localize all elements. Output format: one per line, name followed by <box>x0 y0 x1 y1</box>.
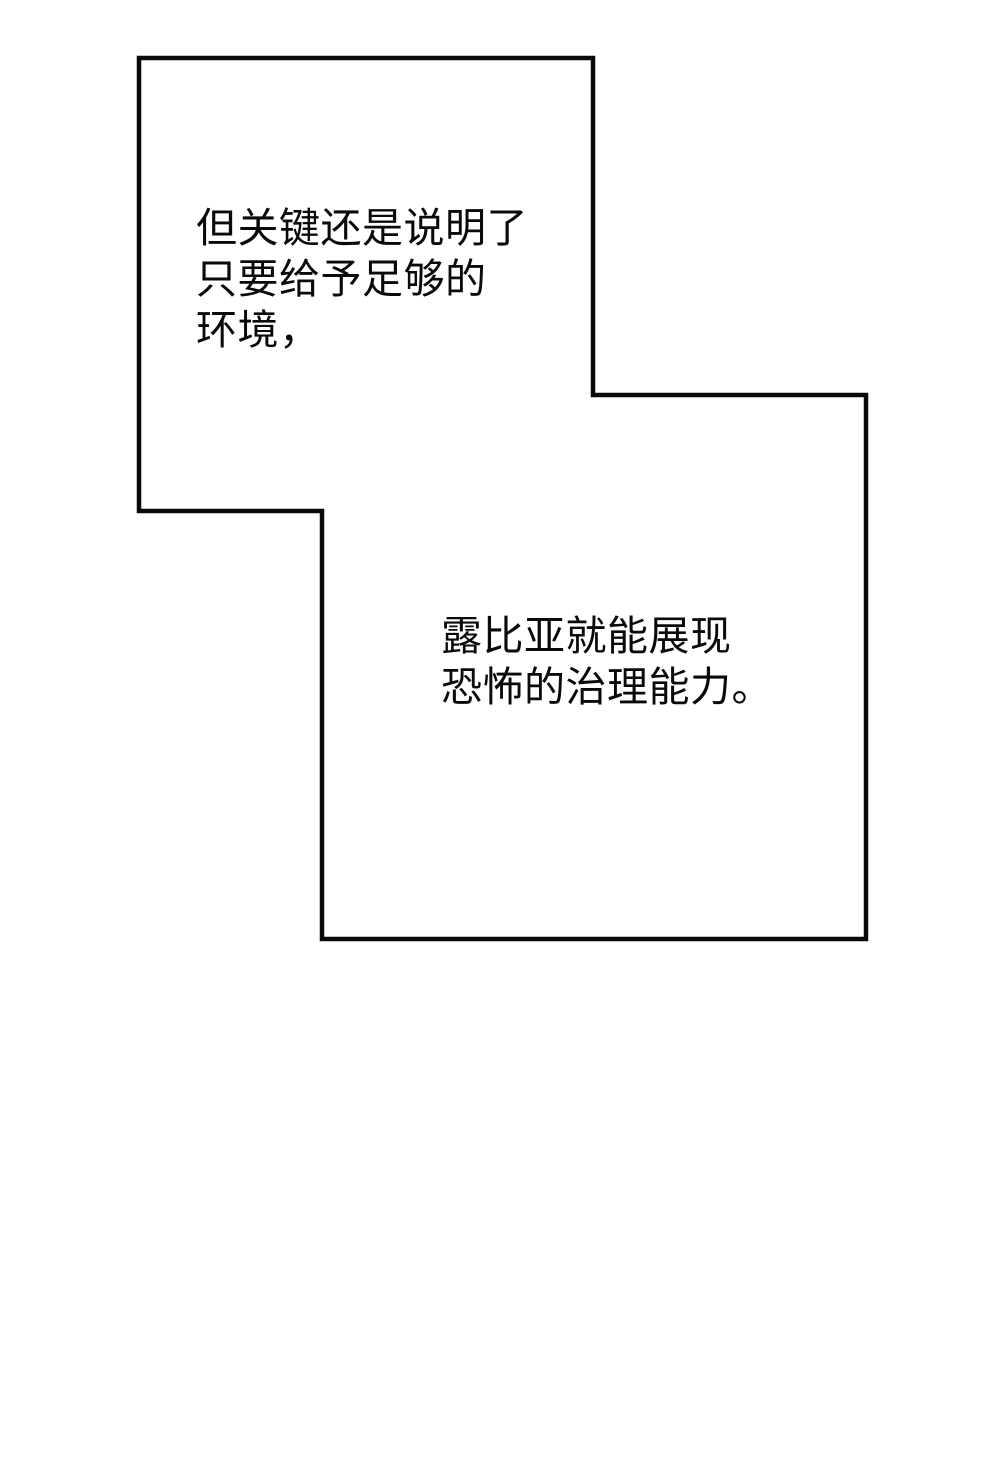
speech-line: 但关键还是说明了 <box>196 203 528 254</box>
comic-page: 但关键还是说明了 只要给予足够的 环境， 露比亚就能展现 恐怖的治理能力。 <box>0 0 1000 1478</box>
speech-line: 恐怖的治理能力。 <box>441 662 773 713</box>
speech-line: 只要给予足够的 <box>196 254 528 305</box>
panel-union-border <box>139 58 866 939</box>
speech-line: 露比亚就能展现 <box>441 611 773 662</box>
speech-text-panel-1: 但关键还是说明了 只要给予足够的 环境， <box>196 203 528 356</box>
speech-text-panel-2: 露比亚就能展现 恐怖的治理能力。 <box>441 611 773 713</box>
speech-line: 环境， <box>196 305 528 356</box>
